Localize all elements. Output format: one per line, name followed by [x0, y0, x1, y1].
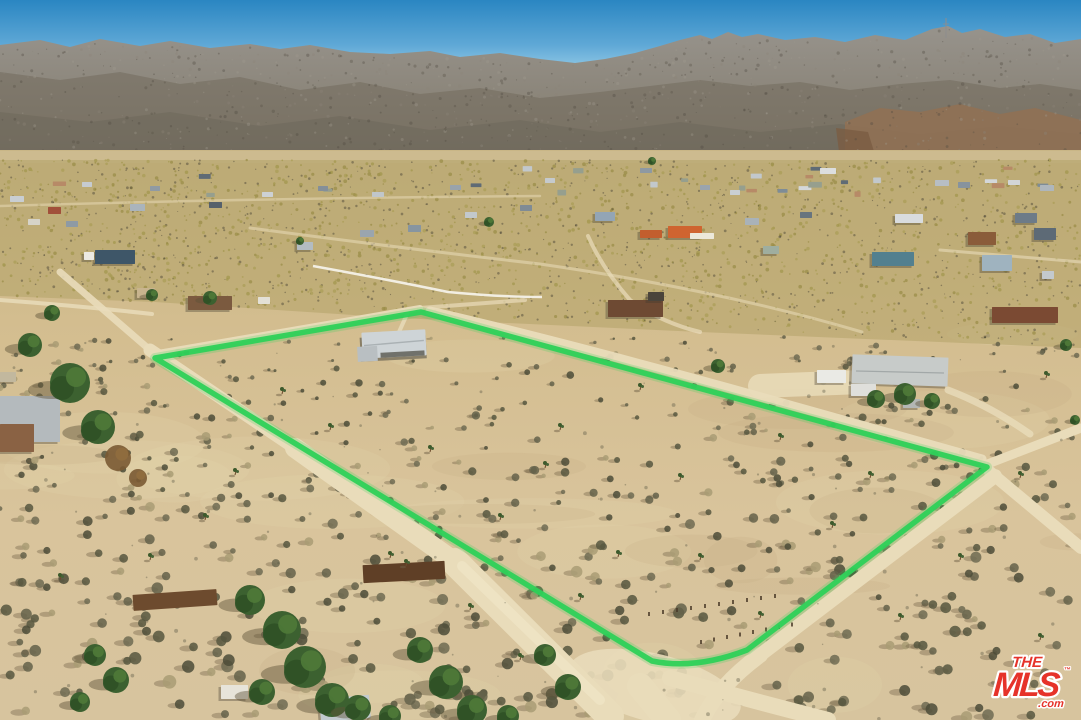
logo-com-text: .com — [1038, 698, 1065, 710]
aerial-photo: THE MLS ™ .com — [0, 0, 1081, 720]
subject-house — [356, 329, 426, 362]
logo-trademark-symbol: ™ — [1063, 667, 1070, 674]
themls-logo: THE MLS ™ .com — [989, 650, 1073, 712]
aerial-photo-canvas — [0, 0, 1081, 720]
